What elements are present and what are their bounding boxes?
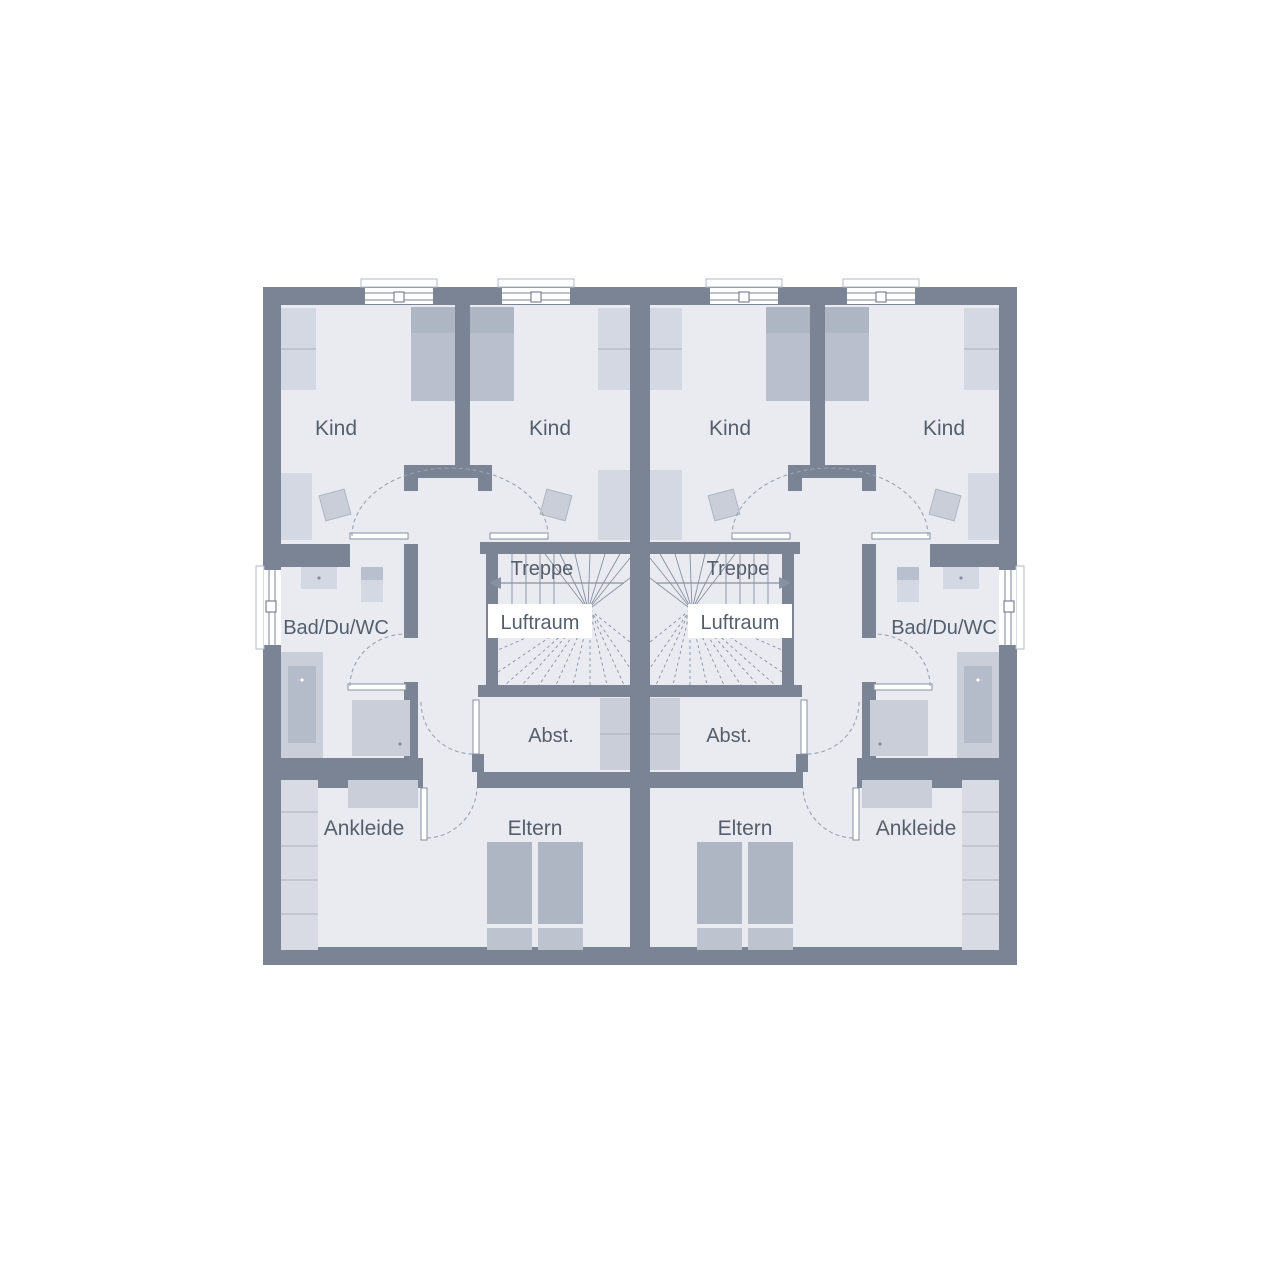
room-label-bad-2: Bad/Du/WC — [891, 617, 997, 639]
bed-pillow — [766, 307, 810, 333]
bed-pillow — [411, 307, 455, 333]
wall — [480, 542, 640, 554]
wall — [404, 477, 418, 491]
room-label-luftraum-2: Luftraum — [701, 612, 780, 634]
shower — [352, 700, 410, 756]
room-label-eltern-1: Eltern — [508, 817, 563, 840]
double-bed-mattress — [697, 842, 742, 924]
room-label-kind-1: Kind — [315, 417, 357, 440]
door-leaf — [421, 788, 427, 840]
furniture-cabinet — [650, 470, 682, 540]
room-label-treppe-1: Treppe — [511, 558, 574, 580]
window-sill — [1016, 566, 1024, 649]
room-label-kind-3: Kind — [709, 417, 751, 440]
wall — [788, 477, 802, 491]
door-leaf — [872, 533, 930, 539]
room-label-luftraum-1: Luftraum — [501, 612, 580, 634]
wall — [930, 544, 999, 567]
room-label-bad-1: Bad/Du/WC — [283, 617, 389, 639]
wall — [477, 772, 640, 788]
wall — [810, 305, 825, 465]
wall — [478, 685, 640, 697]
wall — [404, 544, 418, 638]
double-bed-mattress — [748, 842, 793, 924]
floor-plan-page: Kind Kind Kind Kind Treppe Treppe Luftra… — [0, 0, 1280, 1280]
wall — [796, 754, 808, 772]
window-handle — [739, 292, 749, 302]
window-sill — [843, 279, 919, 287]
wall — [862, 544, 876, 638]
furniture-cabinet — [361, 580, 383, 602]
wall — [862, 477, 876, 491]
double-bed-foot — [487, 928, 532, 950]
room-label-treppe-2: Treppe — [707, 558, 770, 580]
window-sill — [706, 279, 782, 287]
double-bed-foot — [538, 928, 583, 950]
window-handle — [1004, 601, 1014, 612]
window-handle — [531, 292, 541, 302]
door-leaf — [874, 684, 932, 690]
furniture-cabinet — [598, 470, 630, 540]
wall — [281, 544, 350, 567]
bed-pillow — [470, 307, 514, 333]
room-label-abst-2: Abst. — [706, 725, 752, 747]
shower — [870, 700, 928, 756]
wall — [640, 542, 800, 554]
wc — [897, 567, 919, 580]
furniture-cabinet — [897, 580, 919, 602]
wc — [361, 567, 383, 580]
room-label-abst-1: Abst. — [528, 725, 574, 747]
furniture-wardrobe — [348, 780, 418, 808]
window-handle — [876, 292, 886, 302]
room-label-eltern-2: Eltern — [718, 817, 773, 840]
double-bed-foot — [697, 928, 742, 950]
room-label-kind-4: Kind — [923, 417, 965, 440]
wall — [472, 754, 484, 772]
wall — [630, 287, 650, 965]
unit-left — [256, 279, 640, 950]
furniture-cabinet — [281, 473, 312, 540]
door-leaf — [348, 684, 406, 690]
window-handle — [266, 601, 276, 612]
door-leaf — [853, 788, 859, 840]
furniture-cabinet — [968, 473, 999, 540]
bathtub-inner — [964, 666, 992, 743]
door-leaf — [490, 533, 548, 539]
window-sill — [256, 566, 264, 649]
furniture-wardrobe-strip — [962, 780, 999, 950]
bed-pillow — [825, 307, 869, 333]
door-leaf — [473, 700, 479, 754]
unit-right — [640, 279, 1024, 950]
room-label-kind-2: Kind — [529, 417, 571, 440]
wall — [640, 772, 803, 788]
window-handle — [394, 292, 404, 302]
double-bed-mattress — [538, 842, 583, 924]
room-label-ankleide-1: Ankleide — [324, 817, 405, 840]
room-label-ankleide-2: Ankleide — [876, 817, 957, 840]
window-sill — [361, 279, 437, 287]
double-bed-foot — [748, 928, 793, 950]
furniture-wardrobe-strip — [281, 780, 318, 950]
door-leaf — [732, 533, 790, 539]
floor-plan-canvas: Kind Kind Kind Kind Treppe Treppe Luftra… — [0, 0, 1280, 1280]
wall — [478, 477, 492, 491]
wall — [640, 685, 802, 697]
furniture-wardrobe — [862, 780, 932, 808]
bathtub-inner — [288, 666, 316, 743]
window-sill — [498, 279, 574, 287]
door-leaf — [801, 700, 807, 754]
door-leaf — [350, 533, 408, 539]
wall — [455, 305, 470, 465]
double-bed-mattress — [487, 842, 532, 924]
